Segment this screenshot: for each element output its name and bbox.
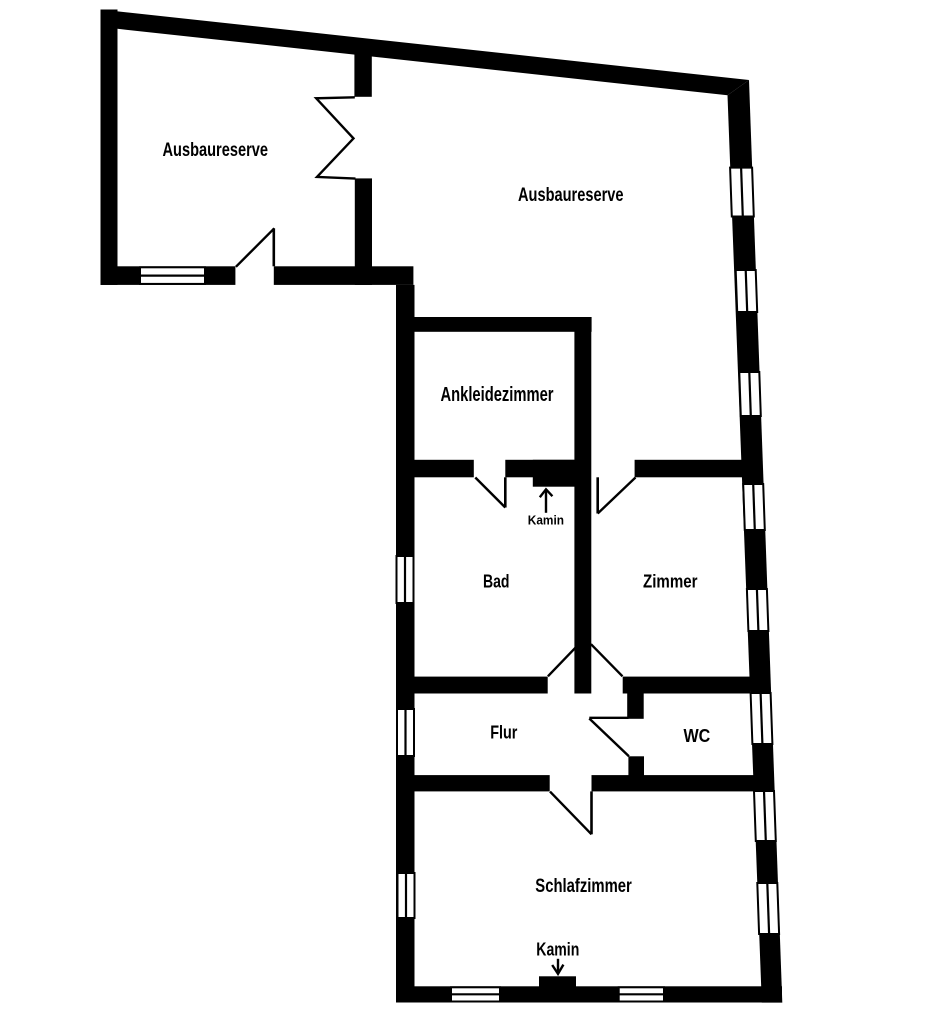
svg-text:Flur: Flur [490, 722, 517, 743]
svg-text:Schlafzimmer: Schlafzimmer [535, 875, 632, 897]
svg-text:Kamin: Kamin [528, 513, 564, 528]
svg-text:Bad: Bad [483, 571, 510, 592]
svg-text:Ankleidezimmer: Ankleidezimmer [441, 383, 554, 406]
svg-text:WC: WC [684, 726, 711, 746]
svg-text:Ausbaureserve: Ausbaureserve [518, 184, 624, 206]
svg-text:Ausbaureserve: Ausbaureserve [163, 139, 269, 161]
svg-text:Kamin: Kamin [536, 940, 579, 960]
svg-text:Zimmer: Zimmer [643, 571, 698, 592]
